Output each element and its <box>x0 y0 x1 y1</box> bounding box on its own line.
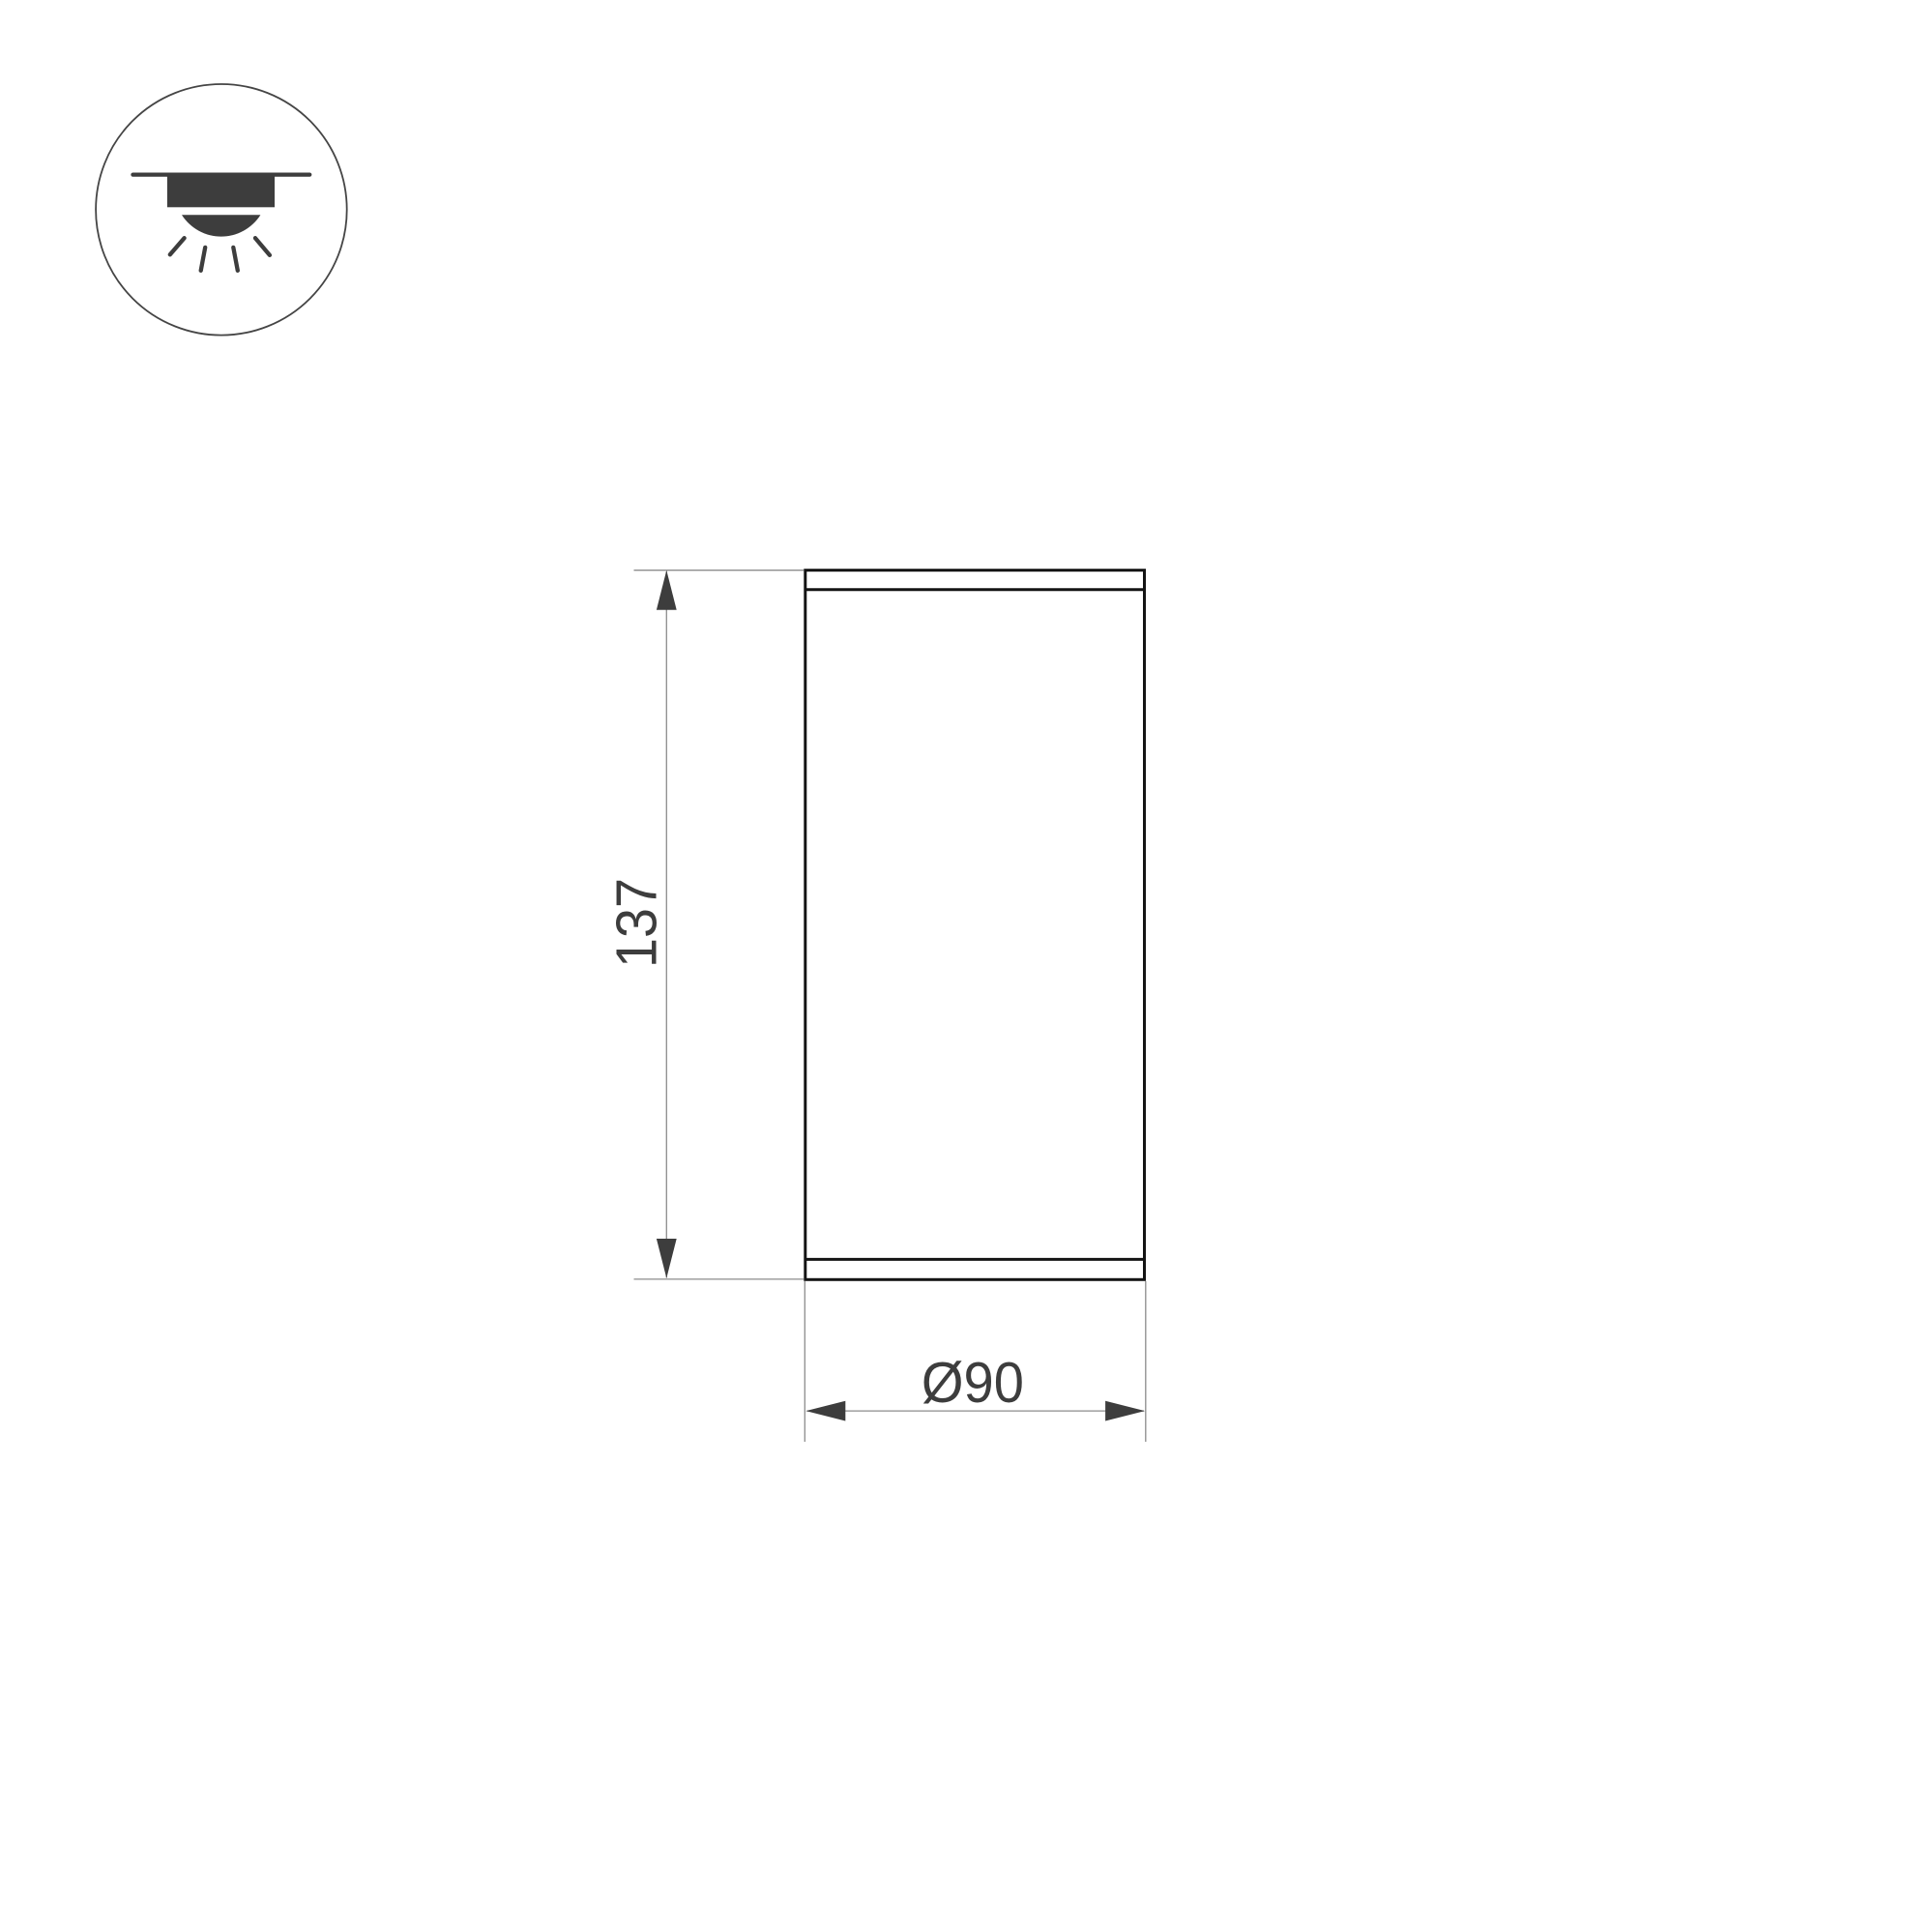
svg-text:137: 137 <box>605 878 669 968</box>
svg-text:Ø90: Ø90 <box>922 1351 1024 1415</box>
